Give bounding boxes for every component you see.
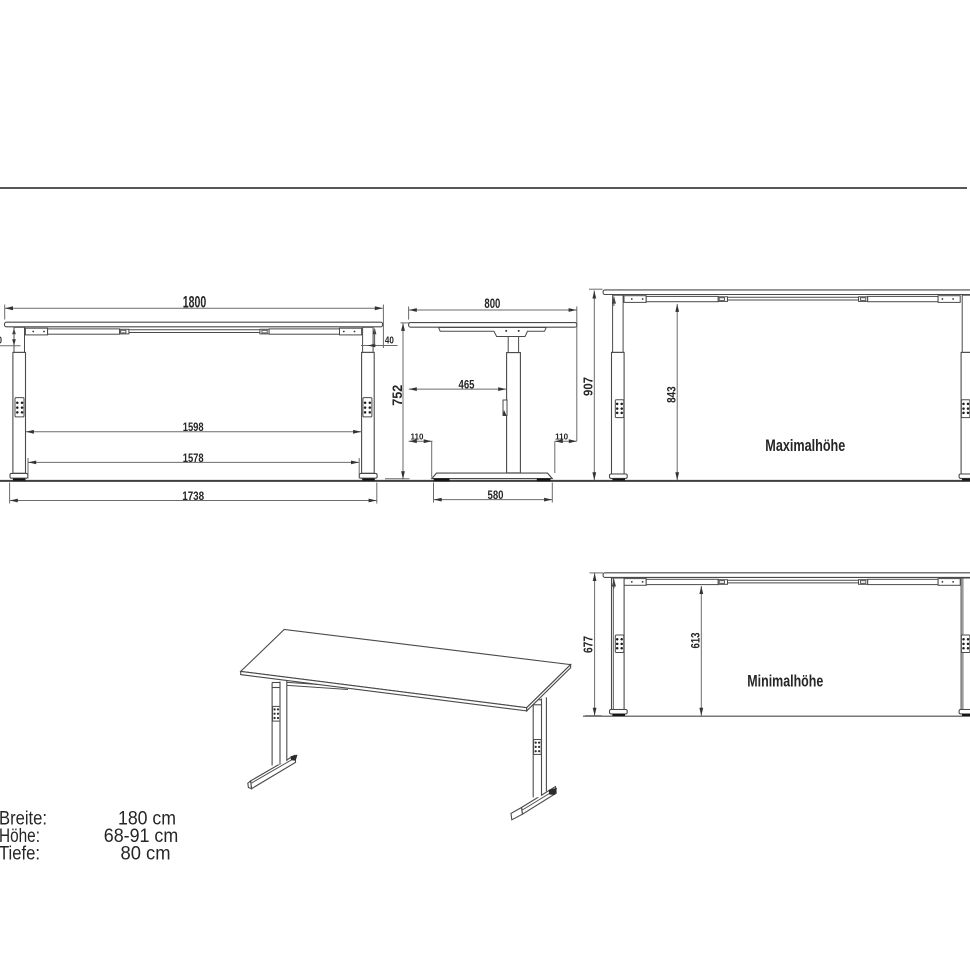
- svg-text:1598: 1598: [183, 420, 204, 434]
- svg-text:907: 907: [580, 377, 595, 396]
- svg-text:Tiefe:: Tiefe:: [0, 844, 40, 865]
- svg-text:465: 465: [459, 378, 475, 392]
- svg-text:1738: 1738: [182, 489, 204, 503]
- svg-text:580: 580: [488, 488, 504, 502]
- svg-text:800: 800: [484, 295, 500, 311]
- svg-text:40: 40: [385, 336, 394, 347]
- svg-text:110: 110: [411, 432, 424, 442]
- svg-text:752: 752: [390, 385, 405, 406]
- svg-text:Maximalhöhe: Maximalhöhe: [765, 436, 845, 455]
- svg-text:613: 613: [689, 632, 703, 648]
- svg-text:677: 677: [582, 636, 596, 653]
- svg-text:1578: 1578: [183, 451, 204, 465]
- svg-text:80 cm: 80 cm: [121, 844, 171, 865]
- svg-text:Minimalhöhe: Minimalhöhe: [747, 672, 823, 691]
- svg-text:110: 110: [555, 432, 568, 442]
- svg-text:843: 843: [664, 386, 678, 403]
- svg-text:1800: 1800: [183, 293, 207, 312]
